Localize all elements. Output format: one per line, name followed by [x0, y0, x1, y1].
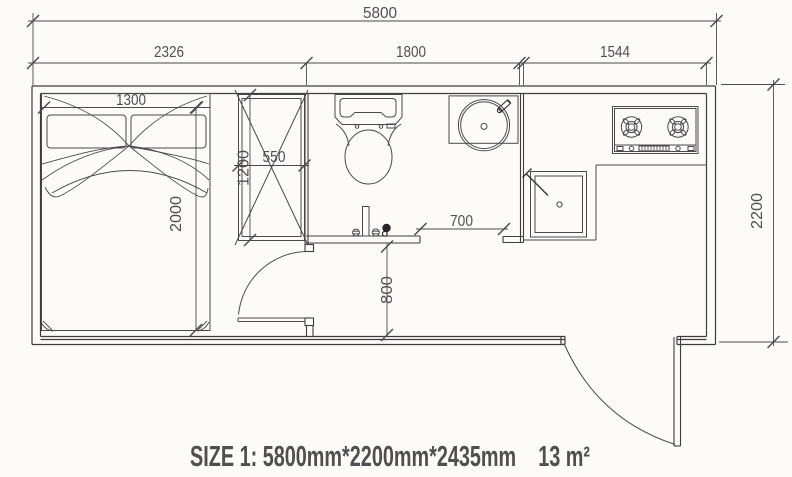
svg-text:1200: 1200: [236, 150, 253, 186]
svg-text:1544: 1544: [600, 44, 630, 61]
svg-text:800: 800: [379, 276, 396, 304]
svg-text:2326: 2326: [154, 44, 184, 61]
svg-text:550: 550: [263, 149, 286, 166]
svg-text:1300: 1300: [116, 92, 146, 109]
svg-text:1800: 1800: [396, 44, 426, 61]
svg-text:5800: 5800: [363, 5, 397, 22]
svg-text:2000: 2000: [168, 196, 185, 232]
svg-text:700: 700: [450, 213, 473, 230]
svg-text:SIZE 1: 5800mm*2200mm*2435mm: SIZE 1: 5800mm*2200mm*2435mm 13 m²: [190, 441, 590, 473]
svg-text:2200: 2200: [749, 193, 766, 229]
